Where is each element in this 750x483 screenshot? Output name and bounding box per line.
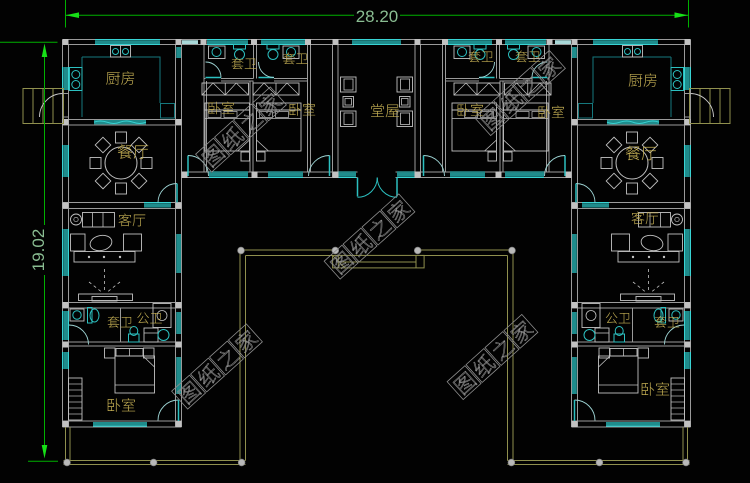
svg-text:28.20: 28.20 [356, 7, 399, 26]
svg-text:19.02: 19.02 [29, 229, 48, 272]
